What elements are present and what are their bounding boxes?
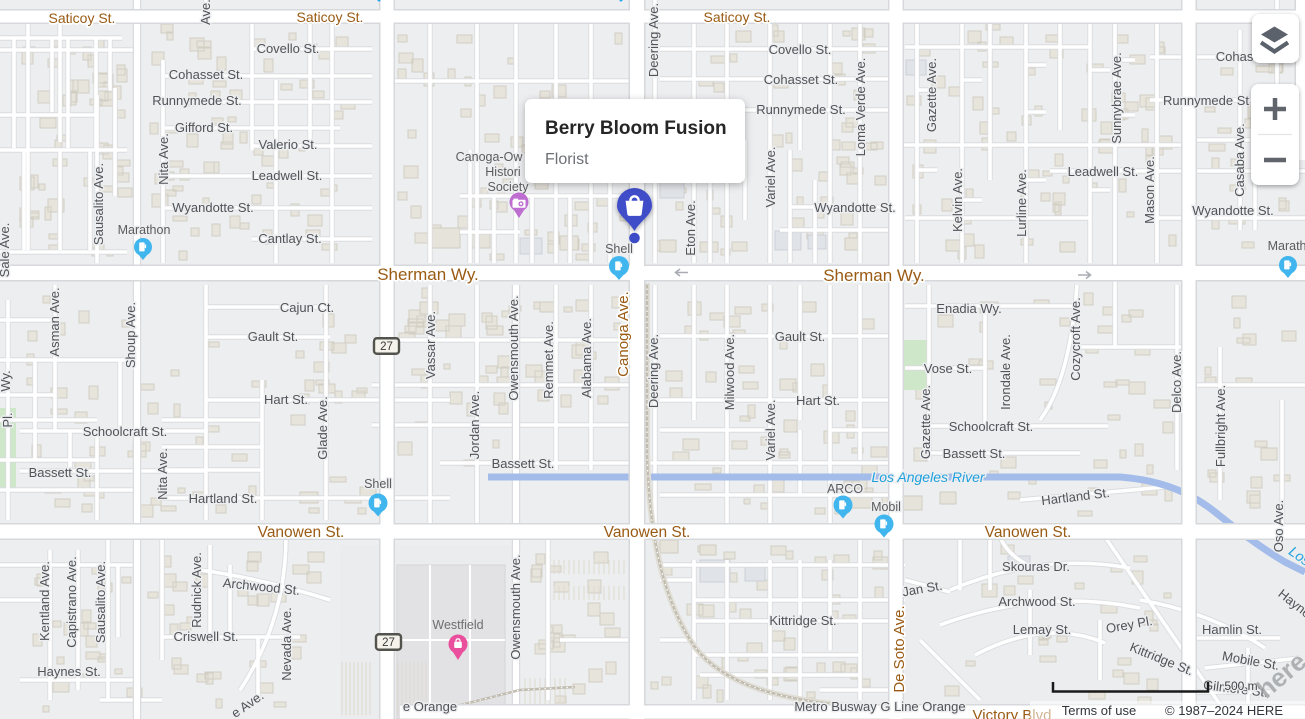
svg-text:Milwood Ave.: Milwood Ave. — [722, 334, 737, 410]
svg-text:Los Angeles River: Los Angeles River — [871, 469, 985, 485]
svg-text:Vanowen St.: Vanowen St. — [258, 524, 345, 541]
svg-text:Lurline Ave.: Lurline Ave. — [1014, 169, 1029, 237]
svg-text:Oso Ave.: Oso Ave. — [1271, 500, 1286, 553]
svg-text:Wyandotte St.: Wyandotte St. — [814, 200, 896, 215]
svg-text:Kelvin Ave.: Kelvin Ave. — [950, 168, 965, 232]
svg-text:Bassett St.: Bassett St. — [29, 465, 92, 480]
svg-text:Irondale Ave.: Irondale Ave. — [998, 334, 1013, 410]
svg-text:27: 27 — [382, 637, 395, 649]
svg-text:© 1987–2024 HERE: © 1987–2024 HERE — [1165, 703, 1283, 718]
svg-text:Cohasset St.: Cohasset St. — [764, 72, 838, 87]
svg-text:Hart St.: Hart St. — [264, 392, 308, 407]
svg-text:Rudnick Ave.: Rudnick Ave. — [189, 552, 204, 628]
svg-text:e Orange: e Orange — [403, 699, 457, 714]
svg-text:Shell: Shell — [364, 477, 392, 491]
svg-text:De Soto Ave.: De Soto Ave. — [891, 605, 908, 692]
svg-text:Variel Ave.: Variel Ave. — [763, 400, 778, 461]
svg-text:Shoup Ave.: Shoup Ave. — [123, 302, 138, 368]
svg-text:Glade Ave.: Glade Ave. — [315, 396, 330, 459]
svg-text:27: 27 — [380, 341, 393, 353]
svg-text:Leadwell St.: Leadwell St. — [1068, 164, 1139, 179]
svg-text:Mason Ave.: Mason Ave. — [1142, 156, 1157, 224]
svg-text:Runnymede St.: Runnymede St. — [152, 93, 242, 108]
svg-text:Criswell St.: Criswell St. — [173, 629, 238, 644]
svg-text:Shell: Shell — [605, 242, 633, 256]
svg-text:Hamlin St.: Hamlin St. — [1202, 622, 1262, 637]
svg-text:Schoolcraft St.: Schoolcraft St. — [949, 419, 1034, 434]
svg-text:Covello St.: Covello St. — [257, 41, 320, 56]
svg-text:Runnymede St: Runnymede St — [1163, 93, 1249, 108]
svg-text:Saticoy St.: Saticoy St. — [297, 9, 364, 25]
svg-text:Marathon: Marathon — [118, 223, 171, 237]
svg-text:Eton Ave.: Eton Ave. — [683, 200, 698, 255]
svg-text:Cozycroft Ave.: Cozycroft Ave. — [1068, 297, 1083, 381]
svg-text:Gault St.: Gault St. — [248, 329, 299, 344]
svg-text:Casaba Ave.: Casaba Ave. — [1232, 123, 1247, 196]
svg-text:Terms of use: Terms of use — [1062, 703, 1136, 718]
svg-text:Canoga Ave.: Canoga Ave. — [615, 291, 632, 377]
svg-text:Enadia Wy.: Enadia Wy. — [936, 301, 1001, 316]
svg-text:Wyandotte St.: Wyandotte St. — [1192, 203, 1274, 218]
svg-text:Runnymede St.: Runnymede St. — [756, 102, 846, 117]
svg-text:Marathon: Marathon — [1268, 239, 1305, 253]
svg-text:Lemay St.: Lemay St. — [1013, 622, 1072, 637]
svg-text:Metro Busway G Line Orange: Metro Busway G Line Orange — [794, 699, 965, 714]
svg-text:Hartland St.: Hartland St. — [189, 491, 258, 506]
svg-text:Covello St.: Covello St. — [769, 42, 832, 57]
svg-text:Cohasset St.: Cohasset St. — [169, 67, 243, 82]
svg-text:Berry Bloom Fusion: Berry Bloom Fusion — [545, 118, 727, 139]
svg-text:Wy.: Wy. — [0, 370, 13, 391]
svg-text:Nevada Ave.: Nevada Ave. — [279, 607, 294, 680]
svg-text:Owensmouth Ave.: Owensmouth Ave. — [506, 295, 521, 400]
svg-text:Gault St.: Gault St. — [775, 329, 826, 344]
svg-text:Loma Verde Ave.: Loma Verde Ave. — [853, 58, 868, 157]
svg-text:Schoolcraft St.: Schoolcraft St. — [83, 424, 168, 439]
svg-text:Owensmouth Ave.: Owensmouth Ave. — [508, 554, 523, 659]
svg-text:Haynes St.: Haynes St. — [37, 664, 101, 679]
svg-text:ARCO: ARCO — [827, 482, 863, 496]
svg-text:Sausalito Ave.: Sausalito Ave. — [91, 163, 106, 245]
svg-text:Leadwell St.: Leadwell St. — [252, 168, 323, 183]
svg-text:Ave.: Ave. — [198, 0, 213, 25]
svg-text:Society: Society — [488, 180, 530, 194]
svg-text:Archwood St.: Archwood St. — [998, 594, 1075, 609]
svg-text:Florist: Florist — [545, 151, 589, 168]
svg-text:Mobil: Mobil — [871, 500, 901, 514]
svg-text:Fullbright Ave.: Fullbright Ave. — [1213, 385, 1228, 467]
svg-text:Asman Ave.: Asman Ave. — [47, 287, 62, 356]
svg-text:Kittridge St.: Kittridge St. — [769, 613, 836, 628]
svg-text:Sausalito Ave.: Sausalito Ave. — [93, 561, 108, 643]
svg-text:Deering Ave.: Deering Ave. — [646, 3, 661, 77]
svg-text:Sherman Wy.: Sherman Wy. — [377, 265, 479, 284]
svg-text:Wyandotte St.: Wyandotte St. — [172, 200, 254, 215]
svg-text:Skouras Dr.: Skouras Dr. — [1002, 559, 1070, 574]
svg-text:Capistrano Ave.: Capistrano Ave. — [64, 556, 79, 648]
svg-text:Vanowen St.: Vanowen St. — [985, 524, 1072, 541]
svg-text:Nita Ave.: Nita Ave. — [155, 448, 170, 500]
svg-text:Deering Ave.: Deering Ave. — [646, 334, 661, 408]
svg-text:Alabama Ave.: Alabama Ave. — [579, 318, 594, 398]
svg-text:Cajun Ct.: Cajun Ct. — [280, 300, 334, 315]
svg-text:Pl.: Pl. — [0, 412, 15, 427]
svg-text:Cantlay St.: Cantlay St. — [258, 231, 322, 246]
svg-text:Gazette Ave.: Gazette Ave. — [918, 385, 933, 459]
svg-text:Sale Ave.: Sale Ave. — [0, 223, 12, 278]
svg-text:Valerio St.: Valerio St. — [258, 137, 317, 152]
svg-text:Vose St.: Vose St. — [924, 361, 972, 376]
svg-text:Bassett St.: Bassett St. — [943, 446, 1006, 461]
svg-text:Histori: Histori — [485, 165, 520, 179]
svg-text:Delco Ave.: Delco Ave. — [1169, 351, 1184, 413]
svg-text:Bassett St.: Bassett St. — [492, 456, 555, 471]
svg-text:Westfield: Westfield — [432, 618, 483, 632]
svg-text:Gazette Ave.: Gazette Ave. — [924, 58, 939, 132]
svg-text:Saticoy St.: Saticoy St. — [704, 9, 771, 25]
svg-text:Kentland Ave.: Kentland Ave. — [37, 561, 52, 641]
svg-text:Saticoy St.: Saticoy St. — [49, 10, 116, 26]
svg-text:Sunnybrae Ave.: Sunnybrae Ave. — [1109, 52, 1124, 144]
svg-text:Jordan Ave.: Jordan Ave. — [467, 391, 482, 459]
svg-text:Nita Ave.: Nita Ave. — [156, 133, 171, 185]
svg-text:Sherman Wy.: Sherman Wy. — [823, 266, 925, 285]
svg-text:Vanowen St.: Vanowen St. — [604, 524, 691, 541]
svg-text:Vassar Ave.: Vassar Ave. — [423, 311, 438, 379]
svg-text:Remmet Ave.: Remmet Ave. — [541, 321, 556, 399]
svg-text:Variel Ave.: Variel Ave. — [763, 147, 778, 208]
svg-text:Gifford St.: Gifford St. — [175, 120, 233, 135]
svg-text:Hart St.: Hart St. — [796, 393, 840, 408]
svg-text:Canoga-Ow: Canoga-Ow — [456, 150, 524, 164]
